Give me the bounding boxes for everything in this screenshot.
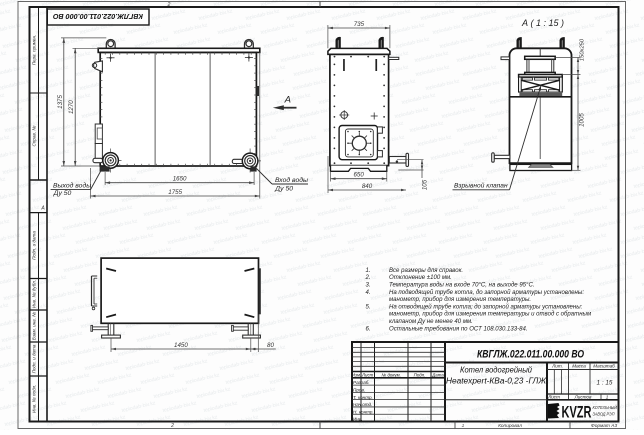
svg-text:1.: 1. — [365, 268, 370, 274]
svg-text:150х250: 150х250 — [580, 38, 586, 61]
svg-text:Ду 50: Ду 50 — [274, 186, 293, 193]
svg-text:Инв. № дубл.: Инв. № дубл. — [32, 280, 37, 308]
svg-text:2: 2 — [167, 2, 171, 8]
svg-text:840: 840 — [362, 183, 373, 190]
svg-text:5.: 5. — [365, 304, 370, 310]
svg-text:650: 650 — [353, 172, 364, 179]
svg-text:Пров.: Пров. — [353, 387, 365, 392]
svg-text:Вход воды: Вход воды — [275, 176, 308, 184]
svg-text:А ( 1 : 15 ): А ( 1 : 15 ) — [521, 18, 564, 28]
svg-text:1375: 1375 — [57, 95, 64, 109]
svg-text:Лист: Лист — [547, 394, 560, 399]
svg-text:Все размеры для справок.: Все размеры для справок. — [389, 268, 463, 274]
svg-text:2.: 2. — [364, 275, 370, 281]
svg-text:1270: 1270 — [68, 100, 75, 114]
svg-text:Подп.: Подп. — [414, 372, 426, 377]
svg-text:2: 2 — [170, 423, 174, 429]
svg-text:105: 105 — [422, 179, 429, 190]
svg-text:1 : 15: 1 : 15 — [597, 379, 613, 386]
svg-text:Лит.: Лит. — [551, 364, 563, 369]
svg-text:1005: 1005 — [579, 113, 586, 127]
svg-text:1: 1 — [462, 423, 465, 429]
svg-text:Выход воды: Выход воды — [53, 181, 91, 189]
svg-text:1: 1 — [606, 394, 609, 399]
svg-text:Н. контр.: Н. контр. — [353, 409, 374, 414]
svg-text:Масса: Масса — [572, 364, 586, 369]
svg-text:KVZR: KVZR — [562, 402, 592, 421]
svg-text:Отклонение ±100 мм.: Отклонение ±100 мм. — [389, 275, 452, 281]
svg-text:Ду 50: Ду 50 — [53, 190, 72, 197]
svg-text:Инв. № подл.: Инв. № подл. — [32, 384, 37, 413]
svg-text:80: 80 — [267, 342, 274, 349]
svg-text:1755: 1755 — [168, 189, 182, 196]
svg-text:Копировал: Копировал — [498, 423, 522, 429]
svg-text:Подп. и дата: Подп. и дата — [32, 344, 37, 373]
svg-text:1450: 1450 — [174, 342, 188, 349]
svg-text:Heatexpert-КВа-0,23 -ГЛЖ: Heatexpert-КВа-0,23 -ГЛЖ — [446, 376, 547, 386]
svg-text:Взам. инв. №: Взам. инв. № — [32, 312, 37, 340]
svg-text:4.: 4. — [365, 290, 370, 296]
svg-text:Температура воды на входе 70°С: Температура воды на входе 70°С, на выход… — [389, 282, 535, 288]
svg-text:А: А — [40, 206, 45, 212]
svg-text:Разраб.: Разраб. — [353, 380, 370, 385]
svg-text:На отводящей трубе котла; до з: На отводящей трубе котла; до запорной ар… — [389, 303, 583, 310]
svg-text:735: 735 — [354, 21, 365, 28]
svg-text:Перв. примен.: Перв. примен. — [32, 35, 37, 66]
svg-text:3.: 3. — [365, 282, 370, 288]
svg-text:КВГЛЖ.022.011.00.000 ВО: КВГЛЖ.022.011.00.000 ВО — [52, 12, 143, 19]
svg-text:Инв.: Инв. — [353, 417, 363, 422]
svg-text:Масштаб: Масштаб — [593, 364, 615, 369]
svg-text:Котел водогрейный: Котел водогрейный — [460, 365, 532, 375]
svg-text:А: А — [284, 95, 291, 106]
svg-text:Нач.отд.: Нач.отд. — [353, 402, 372, 407]
svg-text:ЗАВОД РЭП: ЗАВОД РЭП — [593, 412, 615, 417]
svg-text:Формат А3: Формат А3 — [591, 423, 618, 429]
svg-text:Справ. №: Справ. № — [32, 126, 37, 147]
svg-text:КВГЛЖ.022.011.00.000 ВО: КВГЛЖ.022.011.00.000 ВО — [477, 348, 584, 360]
svg-text:Изм.: Изм. — [352, 372, 361, 377]
svg-text:Листов: Листов — [574, 394, 592, 399]
svg-text:Взрывной клапан: Взрывной клапан — [454, 182, 508, 190]
svg-text:манометр, прибор для измерения: манометр, прибор для измерения температу… — [389, 312, 592, 318]
svg-text:Т. контр.: Т. контр. — [353, 395, 373, 400]
svg-text:Лист: Лист — [361, 372, 374, 377]
svg-text:1650: 1650 — [173, 176, 187, 183]
svg-text:6.: 6. — [365, 326, 370, 332]
svg-text:клапаном Ду не менее 40 мм.: клапаном Ду не менее 40 мм. — [389, 319, 473, 325]
svg-text:№ докум.: № докум. — [382, 372, 401, 377]
svg-text:Подп. и дата: Подп. и дата — [32, 231, 37, 260]
svg-text:На подводящей трубе котла, до: На подводящей трубе котла, до запорной а… — [389, 289, 584, 296]
svg-text:Остальные требования по ОСТ 10: Остальные требования по ОСТ 108.030.133-… — [389, 326, 528, 332]
svg-text:КОТЕЛЬНЫЙ: КОТЕЛЬНЫЙ — [593, 403, 618, 410]
svg-text:Дата: Дата — [431, 372, 444, 377]
svg-text:манометр, прибор для измерения: манометр, прибор для измерения температу… — [389, 297, 531, 303]
